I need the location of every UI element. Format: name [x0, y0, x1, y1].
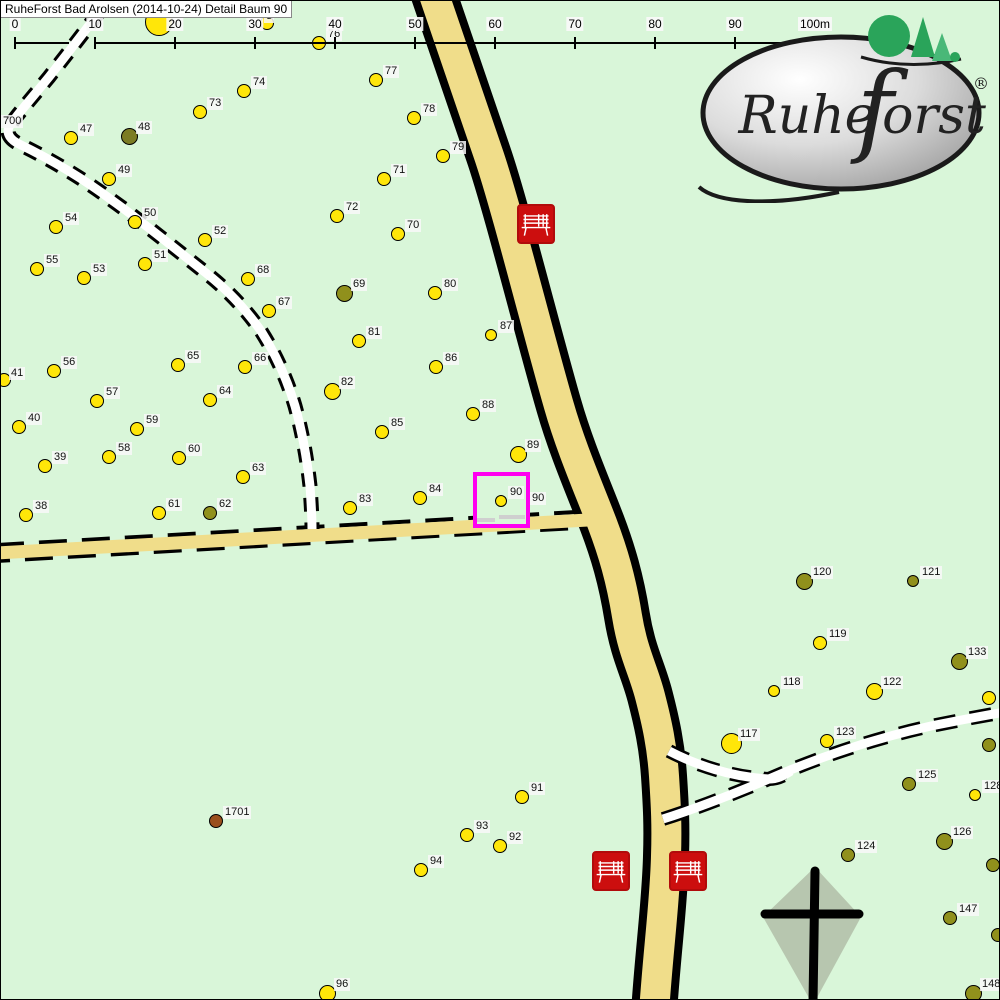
ruheforst-logo: Ruhe f orst ® [689, 11, 1000, 203]
map-title: RuheForst Bad Arolsen (2014-10-24) Detai… [1, 1, 292, 18]
scale-tick-label: 50 [406, 17, 423, 31]
scale-tick [334, 37, 336, 49]
scale-tick-label: 20 [166, 17, 183, 31]
scale-tick [14, 37, 16, 49]
forest-map: 7677747378794748497172507054525155536869… [0, 0, 1000, 1000]
scale-tick [174, 37, 176, 49]
scale-tick [574, 37, 576, 49]
forest-path-west [8, 1, 312, 529]
scale-tick [254, 37, 256, 49]
scale-tick-label: 10 [86, 17, 103, 31]
scale-tick [414, 37, 416, 49]
scale-tick-label: 80 [646, 17, 663, 31]
cross-vertical [813, 871, 815, 1000]
forest-path-southeast [663, 711, 1000, 819]
highlight-box [475, 474, 528, 526]
scale-tick [494, 37, 496, 49]
logo-registered-mark: ® [973, 74, 989, 93]
scale-tick-label: 60 [486, 17, 503, 31]
scale-tick [654, 37, 656, 49]
scale-tick-label: 70 [566, 17, 583, 31]
logo-text-post: orst [882, 86, 986, 146]
memorial-cross [756, 863, 868, 1000]
logo-text-pre: Ruhe [738, 86, 876, 146]
scale-tick [94, 37, 96, 49]
scale-tick-label: 30 [246, 17, 263, 31]
scale-line-left [15, 42, 69, 44]
scale-tick-label: 40 [326, 17, 343, 31]
main-road-casing [432, 1, 666, 1000]
scale-tick-label: 0 [10, 17, 21, 31]
